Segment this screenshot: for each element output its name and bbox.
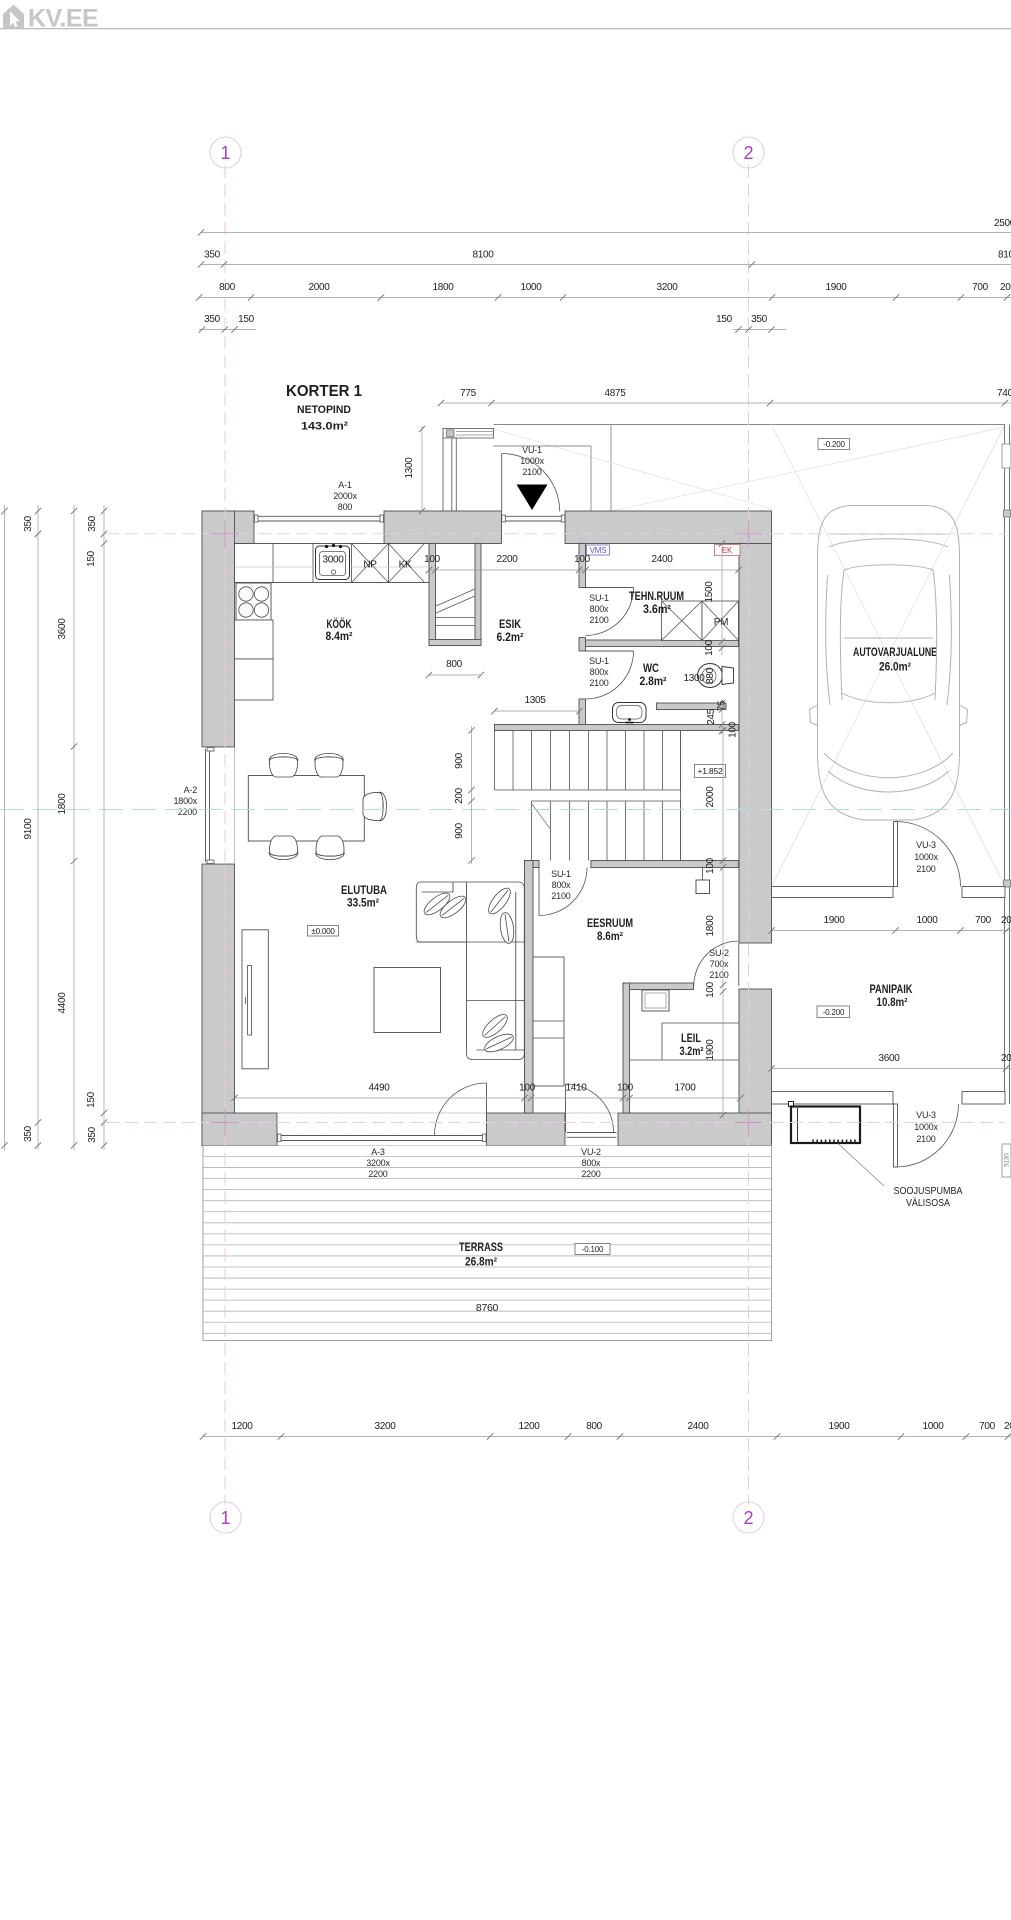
svg-text:2100: 2100: [916, 864, 935, 874]
svg-text:KORTER 1: KORTER 1: [286, 383, 362, 400]
svg-text:VU-3: VU-3: [916, 1110, 936, 1120]
svg-text:1800x: 1800x: [173, 796, 197, 806]
svg-text:TEHN.RUUM: TEHN.RUUM: [629, 591, 684, 603]
svg-text:700x: 700x: [710, 959, 729, 969]
svg-text:800: 800: [338, 502, 353, 512]
svg-text:-0.200: -0.200: [823, 1008, 845, 1017]
svg-text:143.0m²: 143.0m²: [301, 421, 348, 433]
svg-text:1300: 1300: [683, 673, 705, 684]
svg-text:2200: 2200: [496, 554, 518, 565]
svg-text:9100: 9100: [23, 818, 34, 840]
svg-text:4490: 4490: [368, 1083, 390, 1094]
svg-text:150: 150: [86, 550, 97, 567]
svg-text:±0.000: ±0.000: [311, 927, 335, 936]
svg-text:SU-2: SU-2: [709, 948, 729, 958]
svg-text:2100: 2100: [522, 467, 541, 477]
svg-text:1: 1: [220, 143, 230, 163]
svg-text:800x: 800x: [582, 1158, 601, 1168]
svg-text:200: 200: [454, 787, 465, 804]
svg-text:350: 350: [87, 1126, 98, 1143]
svg-text:1000: 1000: [916, 915, 938, 926]
svg-text:8.4m²: 8.4m²: [326, 631, 353, 643]
svg-text:1900: 1900: [828, 1421, 850, 1432]
svg-text:880: 880: [705, 667, 716, 684]
svg-text:350: 350: [204, 250, 221, 261]
svg-text:800x: 800x: [590, 667, 609, 677]
svg-text:4875: 4875: [604, 388, 626, 399]
svg-text:2: 2: [743, 143, 753, 163]
svg-text:800: 800: [219, 282, 236, 293]
svg-text:5130: 5130: [1005, 1153, 1011, 1167]
svg-text:100: 100: [424, 554, 441, 565]
svg-text:26.8m²: 26.8m²: [465, 1257, 497, 1269]
svg-text:A-2: A-2: [184, 785, 198, 795]
svg-text:-0.200: -0.200: [823, 440, 845, 449]
svg-text:VÄLISOSA: VÄLISOSA: [906, 1197, 950, 1209]
svg-text:1200: 1200: [231, 1421, 253, 1432]
svg-text:VU-2: VU-2: [581, 1147, 601, 1157]
svg-text:SOOJUSPUMBA: SOOJUSPUMBA: [894, 1185, 963, 1197]
svg-text:1900: 1900: [825, 282, 847, 293]
svg-text:2000: 2000: [705, 786, 716, 808]
svg-text:1305: 1305: [524, 695, 546, 706]
svg-text:8100: 8100: [998, 250, 1011, 261]
svg-text:SU-1: SU-1: [589, 656, 609, 666]
svg-text:A-1: A-1: [338, 480, 352, 490]
svg-text:10.8m²: 10.8m²: [877, 997, 908, 1009]
svg-text:800x: 800x: [552, 880, 571, 890]
svg-text:3000: 3000: [322, 555, 344, 566]
svg-text:WC: WC: [643, 663, 659, 675]
svg-text:2100: 2100: [709, 970, 728, 980]
svg-text:1900: 1900: [705, 1039, 716, 1061]
svg-text:VMS: VMS: [590, 546, 607, 555]
svg-text:26.0m²: 26.0m²: [879, 662, 911, 674]
svg-text:2100: 2100: [589, 615, 608, 625]
svg-text:900: 900: [454, 752, 465, 769]
svg-text:3600: 3600: [878, 1053, 900, 1064]
svg-text:1300: 1300: [404, 457, 415, 479]
svg-text:6.2m²: 6.2m²: [497, 632, 524, 644]
svg-text:SU-1: SU-1: [589, 593, 609, 603]
svg-text:2400: 2400: [651, 554, 673, 565]
svg-text:100: 100: [617, 1083, 634, 1094]
svg-text:800x: 800x: [590, 604, 609, 614]
svg-text:NETOPIND: NETOPIND: [297, 404, 351, 416]
svg-text:1200: 1200: [518, 1421, 540, 1432]
svg-text:8760: 8760: [476, 1302, 499, 1314]
svg-text:3200x: 3200x: [366, 1158, 390, 1168]
svg-text:150: 150: [238, 314, 255, 325]
svg-text:2200: 2200: [178, 807, 197, 817]
svg-text:800: 800: [586, 1421, 603, 1432]
svg-text:KK: KK: [399, 560, 412, 571]
svg-text:VU-1: VU-1: [522, 445, 542, 455]
svg-text:PANIPAIK: PANIPAIK: [870, 984, 914, 996]
svg-text:2100: 2100: [551, 891, 570, 901]
svg-text:1700: 1700: [674, 1083, 696, 1094]
svg-text:740: 740: [997, 388, 1011, 399]
svg-text:PM: PM: [714, 617, 728, 628]
svg-text:2100: 2100: [589, 678, 608, 688]
svg-text:1000x: 1000x: [914, 852, 938, 862]
svg-text:2400: 2400: [687, 1421, 709, 1432]
svg-text:900: 900: [454, 822, 465, 839]
svg-text:EESRUUM: EESRUUM: [587, 918, 633, 930]
svg-text:TERRASS: TERRASS: [459, 1242, 503, 1254]
svg-text:2000: 2000: [1001, 915, 1011, 926]
svg-text:LEIL: LEIL: [681, 1033, 701, 1045]
svg-text:700: 700: [979, 1421, 996, 1432]
svg-text:2000x: 2000x: [333, 491, 357, 501]
svg-text:1800: 1800: [705, 915, 716, 937]
svg-text:-0.100: -0.100: [582, 1245, 604, 1254]
svg-text:SU-1: SU-1: [551, 869, 571, 879]
svg-text:8100: 8100: [472, 250, 494, 261]
svg-text:1500: 1500: [704, 581, 715, 603]
svg-text:2000: 2000: [1001, 1053, 1011, 1064]
svg-text:2000: 2000: [308, 282, 330, 293]
svg-text:2200: 2200: [368, 1169, 387, 1179]
svg-text:1000: 1000: [922, 1421, 944, 1432]
svg-text:3200: 3200: [656, 282, 678, 293]
svg-text:2: 2: [743, 1508, 753, 1528]
svg-text:700: 700: [972, 282, 989, 293]
svg-text:100: 100: [519, 1083, 536, 1094]
svg-text:3.6m²: 3.6m²: [643, 604, 671, 616]
svg-text:150: 150: [86, 1091, 97, 1108]
svg-text:ESIK: ESIK: [499, 619, 522, 631]
svg-text:2000: 2000: [1000, 282, 1011, 293]
svg-text:350: 350: [23, 1125, 34, 1142]
svg-text:350: 350: [87, 515, 98, 532]
svg-text:2100: 2100: [916, 1134, 935, 1144]
svg-text:VU-3: VU-3: [916, 840, 936, 850]
svg-text:ELUTUBA: ELUTUBA: [341, 885, 387, 897]
svg-text:2500: 2500: [994, 218, 1011, 229]
svg-text:350: 350: [751, 314, 768, 325]
svg-text:775: 775: [460, 388, 477, 399]
svg-text:NP: NP: [363, 560, 377, 571]
svg-text:8.6m²: 8.6m²: [597, 931, 623, 943]
svg-text:1: 1: [220, 1508, 230, 1528]
svg-text:2.8m²: 2.8m²: [640, 676, 667, 688]
svg-text:700: 700: [975, 915, 992, 926]
svg-text:1800: 1800: [432, 282, 454, 293]
svg-text:3.2m²: 3.2m²: [680, 1046, 704, 1058]
svg-text:1000x: 1000x: [914, 1122, 938, 1132]
svg-text:4400: 4400: [57, 992, 68, 1014]
svg-text:1000: 1000: [520, 282, 542, 293]
svg-text:3600: 3600: [57, 618, 68, 640]
svg-text:33.5m²: 33.5m²: [347, 898, 379, 910]
svg-text:350: 350: [204, 314, 221, 325]
svg-text:A-3: A-3: [371, 1147, 385, 1157]
svg-text:100: 100: [728, 721, 739, 738]
svg-text:3200: 3200: [374, 1421, 396, 1432]
svg-text:EK: EK: [722, 546, 733, 555]
svg-text:100: 100: [574, 554, 591, 565]
svg-text:AUTOVARJUALUNE: AUTOVARJUALUNE: [853, 647, 937, 659]
svg-text:1900: 1900: [823, 915, 845, 926]
svg-text:100: 100: [705, 981, 716, 998]
svg-text:KÖÖK: KÖÖK: [327, 618, 353, 631]
svg-text:100: 100: [704, 639, 715, 656]
svg-text:2000: 2000: [1004, 1421, 1011, 1432]
svg-text:150: 150: [716, 314, 733, 325]
svg-text:350: 350: [23, 515, 34, 532]
svg-text:800: 800: [446, 659, 463, 670]
svg-text:1800: 1800: [57, 793, 68, 815]
svg-text:245: 245: [706, 708, 717, 725]
svg-text:100: 100: [705, 857, 716, 874]
svg-text:1000x: 1000x: [520, 456, 544, 466]
svg-text:1410: 1410: [565, 1083, 587, 1094]
svg-text:2200: 2200: [581, 1169, 600, 1179]
svg-text:+1.852: +1.852: [697, 766, 723, 776]
svg-text:75: 75: [717, 700, 728, 711]
